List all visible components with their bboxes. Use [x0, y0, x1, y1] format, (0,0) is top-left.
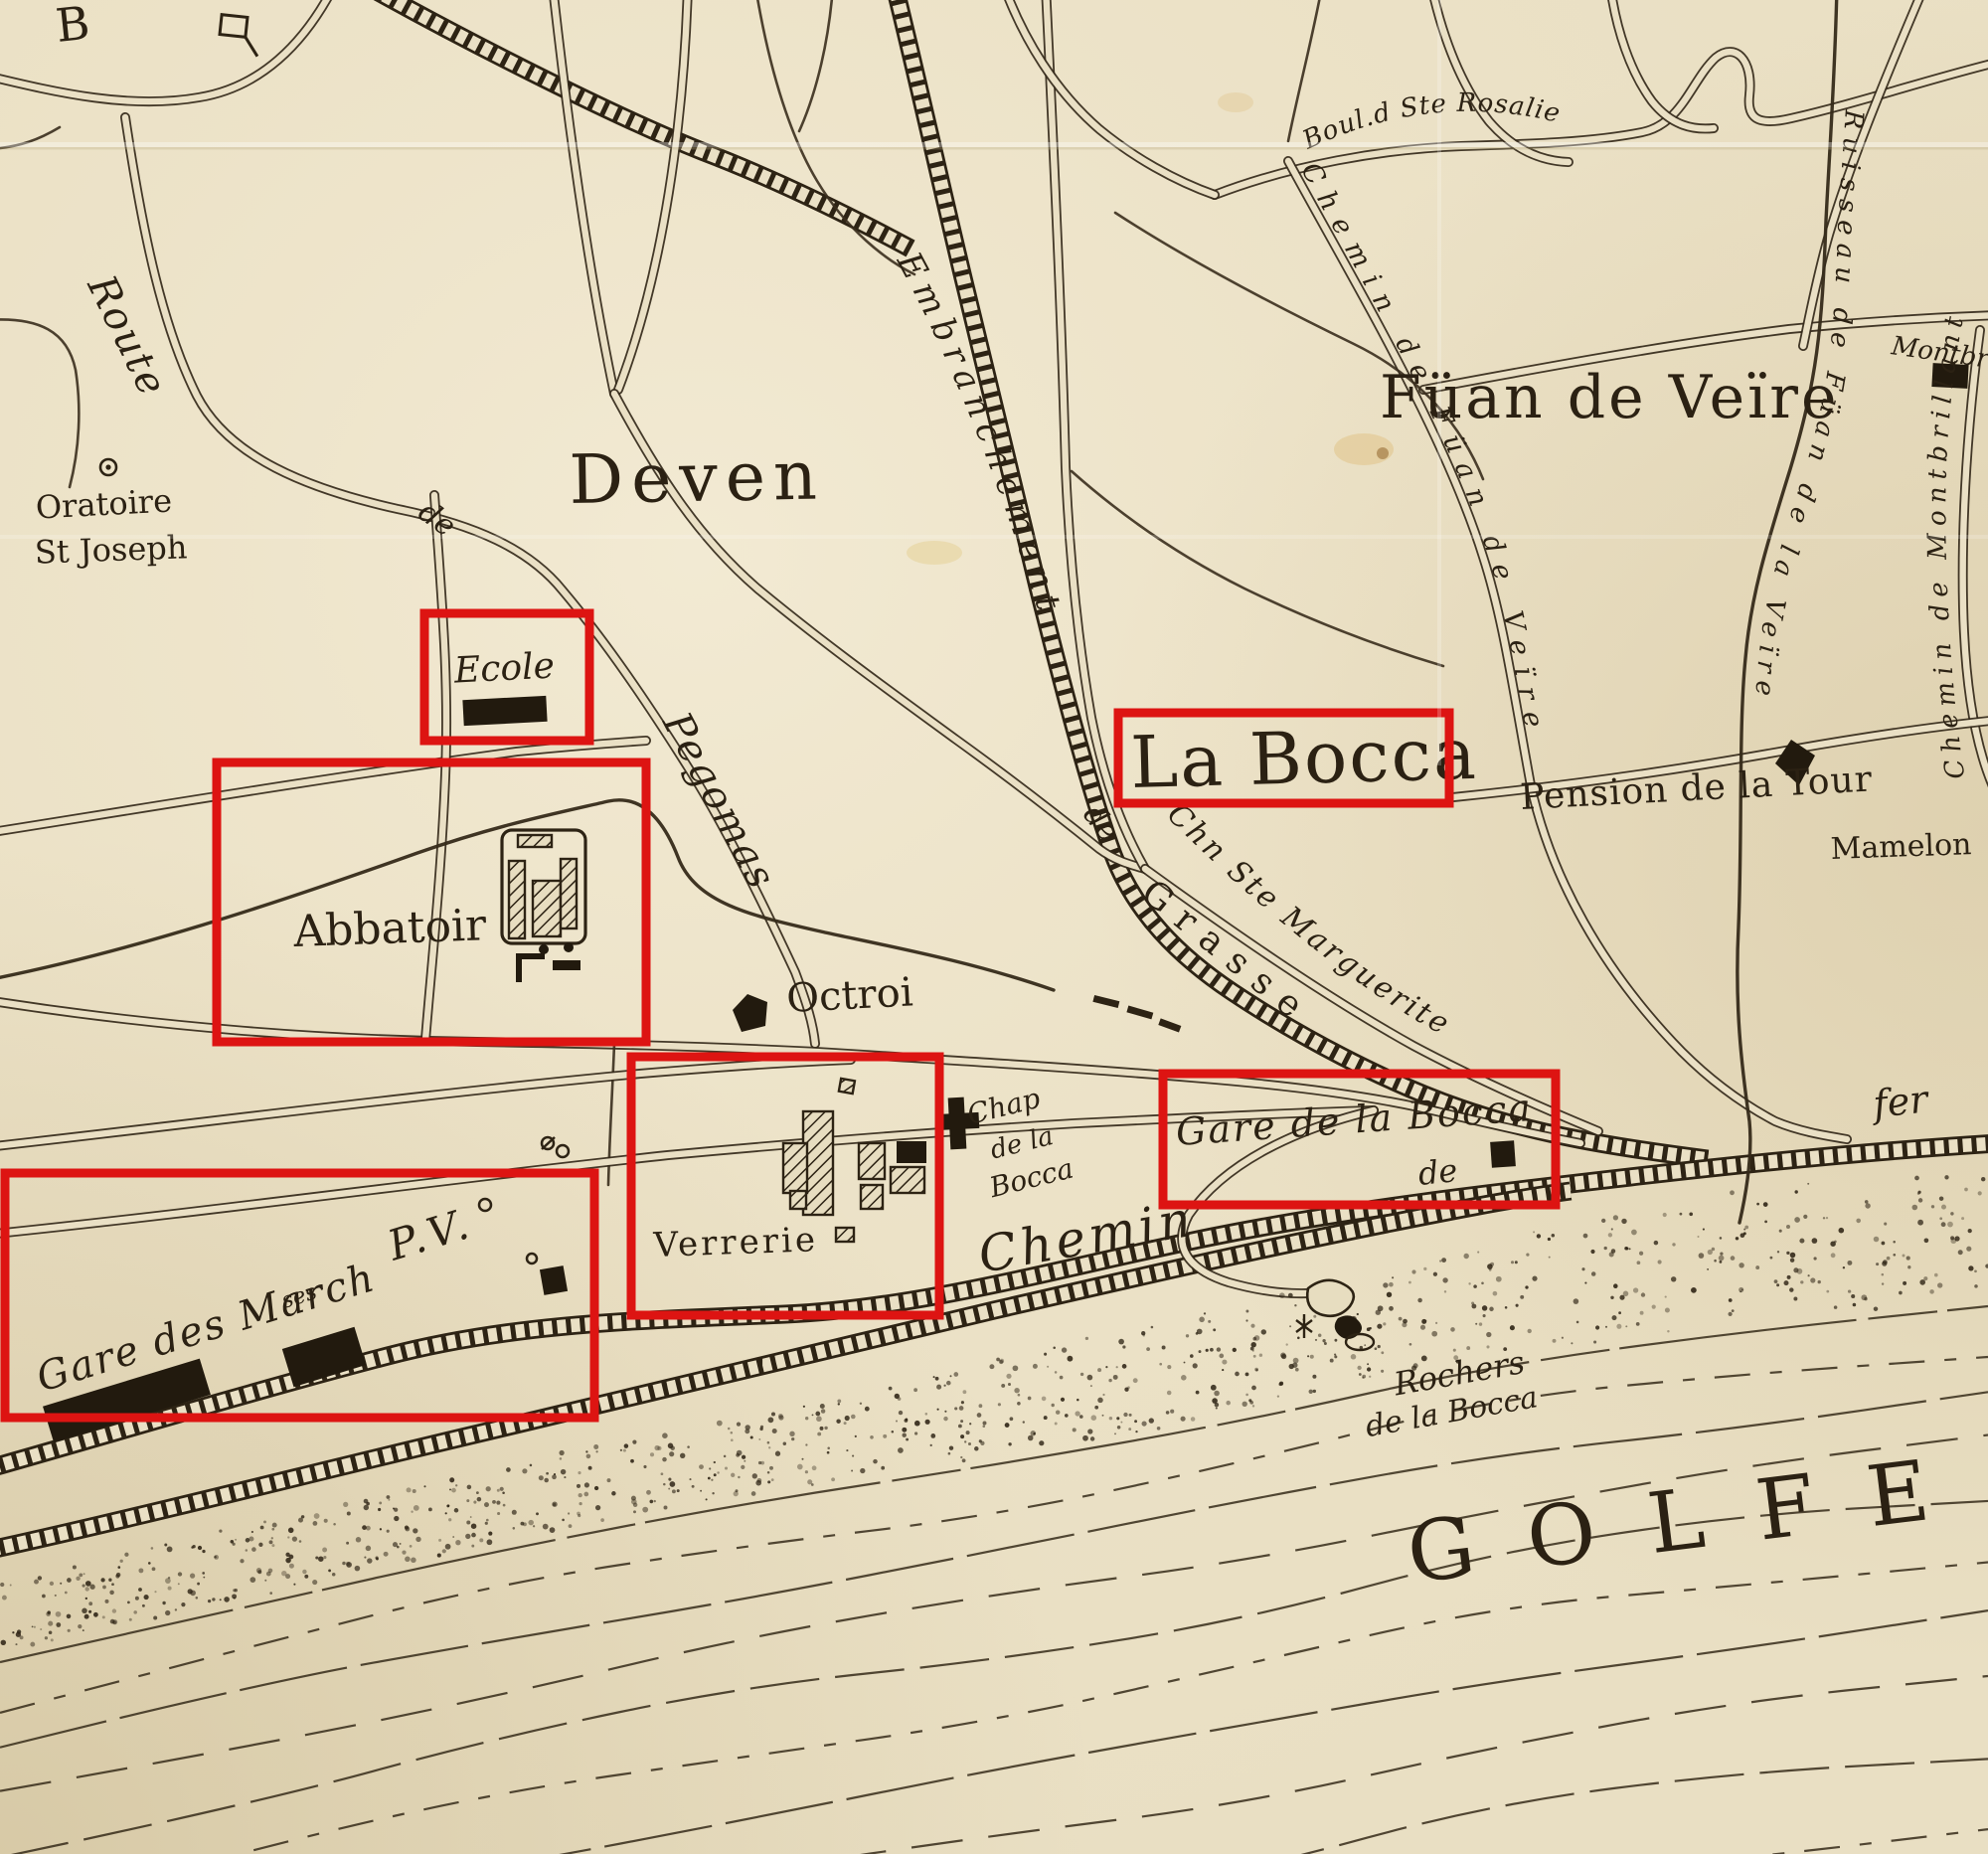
- gare-bocca-station-building: [1490, 1140, 1516, 1168]
- label-b-fragment: B: [54, 0, 92, 53]
- label-fer: fer: [1868, 1077, 1932, 1126]
- paper-stain-2: [907, 541, 962, 565]
- ecole-building: [462, 696, 547, 726]
- map-page: B Route de Pegomas Oratoire St Joseph De…: [0, 0, 1988, 1854]
- label-octroi: Octroi: [785, 969, 913, 1022]
- label-oratoire-2: St Joseph: [34, 528, 188, 571]
- label-ecole: Ecole: [452, 645, 556, 691]
- label-deven: Deven: [569, 437, 826, 520]
- label-mamelon: Mamelon: [1830, 827, 1972, 867]
- paper-stain-spot: [1377, 447, 1389, 459]
- map-canvas: B Route de Pegomas Oratoire St Joseph De…: [0, 0, 1988, 1854]
- label-abbatoir: Abbatoir: [292, 900, 488, 957]
- paper-stain-3: [1218, 92, 1253, 112]
- label-verrerie: Verrerie: [652, 1220, 819, 1265]
- label-la-bocca: La Bocca: [1129, 712, 1479, 804]
- label-oratoire-1: Oratoire: [35, 481, 173, 526]
- label-gare-bocca-de: de: [1416, 1151, 1459, 1193]
